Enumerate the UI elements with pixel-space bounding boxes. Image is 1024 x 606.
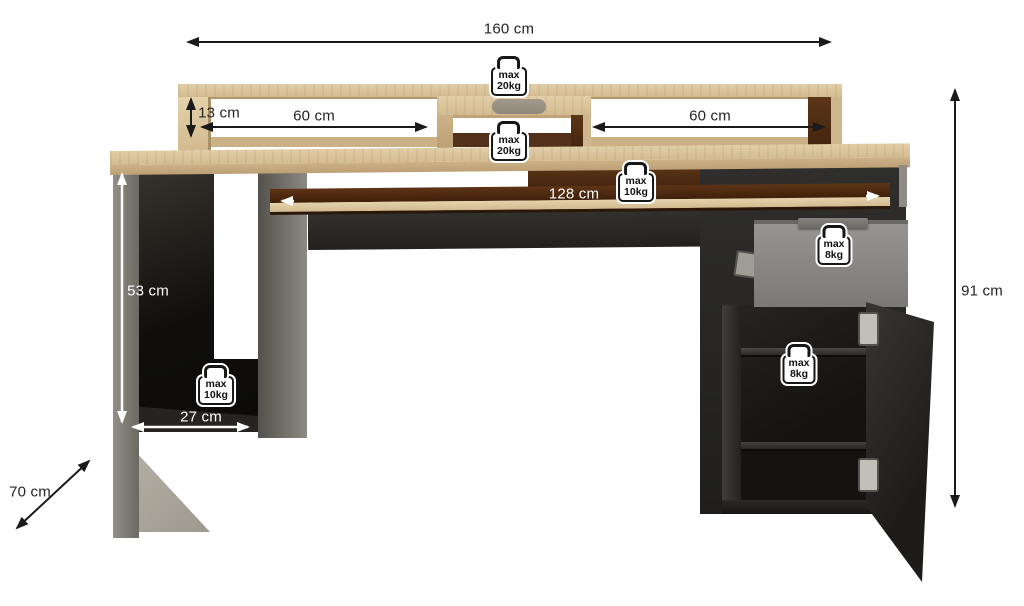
dim-hutch-height-label: 13 cm — [198, 105, 240, 122]
weight-value: 20kg — [497, 146, 521, 157]
weight-value: 20kg — [497, 81, 521, 92]
weight-icon — [787, 344, 810, 357]
dim-desk-depth-label: 70 cm — [9, 484, 51, 501]
dimension-diagram: 160 cm 13 cm 60 cm 60 cm 128 cm 53 cm 27… — [0, 0, 1024, 606]
dim-side-compartment-height-label: 53 cm — [127, 283, 169, 300]
cabinet-left-wall — [722, 305, 741, 505]
weight-limit-side-compartment: max 10kg — [198, 365, 234, 405]
dim-hutch-left-opening-label: 60 cm — [293, 108, 335, 125]
weight-icon — [822, 225, 845, 238]
weight-icon — [625, 162, 648, 175]
hutch-right-support-inner-face — [808, 97, 831, 151]
weight-value: 10kg — [624, 187, 648, 198]
monitor-shelf-left-support — [437, 115, 453, 148]
dim-keyboard-tray-width-label: 128 cm — [549, 186, 599, 203]
weight-value: 8kg — [823, 250, 844, 261]
weight-value: 8kg — [788, 369, 809, 380]
weight-limit-drawer: max 8kg — [817, 225, 850, 265]
weight-limit-monitor-shelf: max 20kg — [491, 121, 527, 161]
dim-total-height-label: 91 cm — [961, 283, 1003, 300]
dim-total-width-label: 160 cm — [484, 21, 534, 38]
side-compartment-opening — [214, 167, 258, 359]
door-hinge-top — [858, 312, 879, 346]
pedestal-right-edge — [899, 165, 907, 207]
monitor-shelf-handle-cutout — [492, 99, 546, 114]
dim-hutch-right-opening-label: 60 cm — [689, 108, 731, 125]
weight-limit-hutch-top: max 20kg — [491, 56, 527, 96]
weight-limit-cabinet-shelf: max 8kg — [782, 344, 815, 384]
door-hinge-bottom — [858, 458, 879, 492]
cabinet-shelf-lower — [741, 442, 866, 451]
weight-limit-keyboard-tray: max 10kg — [618, 162, 654, 202]
side-compartment-left-panel — [113, 160, 139, 538]
hutch-right-support — [808, 97, 842, 151]
weight-icon — [205, 365, 228, 378]
weight-value: 10kg — [204, 390, 228, 401]
cabinet-interior — [722, 305, 866, 505]
weight-icon — [498, 56, 521, 69]
weight-icon — [498, 121, 521, 134]
dim-side-compartment-depth-label: 27 cm — [180, 409, 222, 426]
